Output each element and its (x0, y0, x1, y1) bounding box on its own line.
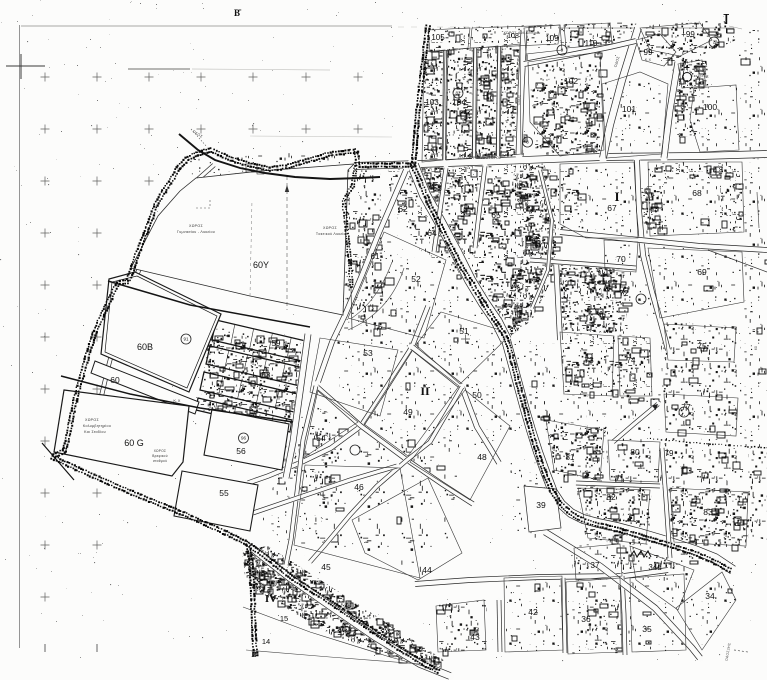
svg-text:Και Σταδίου: Και Σταδίου (84, 430, 106, 434)
svg-text:103: 103 (425, 98, 439, 107)
svg-text:104: 104 (452, 97, 466, 107)
svg-text:ΟΔOΣ ΤΡΑΠΕΖOΥΝΤOΣ: ΟΔOΣ ΤΡΑΠΕΖOΥΝΤOΣ (459, 156, 502, 160)
svg-text:65: 65 (491, 210, 501, 220)
svg-text:61: 61 (371, 252, 380, 261)
svg-text:67: 67 (607, 203, 617, 213)
svg-text:Βρεφικού: Βρεφικού (152, 454, 168, 458)
svg-text:79: 79 (665, 449, 674, 458)
svg-text:XΩΡOΣ: XΩΡOΣ (323, 226, 337, 230)
svg-text:57: 57 (253, 400, 261, 409)
svg-text:96: 96 (241, 436, 247, 441)
svg-text:50: 50 (472, 390, 482, 400)
svg-text:99: 99 (644, 48, 653, 57)
svg-text:75: 75 (697, 341, 707, 351)
svg-text:60: 60 (110, 375, 120, 385)
svg-text:II: II (420, 384, 430, 398)
svg-text:35: 35 (642, 624, 652, 634)
svg-text:48: 48 (477, 452, 487, 462)
svg-text:B: B (251, 650, 257, 659)
svg-text:46: 46 (354, 482, 364, 492)
svg-text:59: 59 (272, 339, 281, 348)
svg-text:52: 52 (411, 274, 421, 284)
svg-text:77: 77 (681, 402, 691, 412)
svg-text:37: 37 (591, 561, 600, 570)
svg-text:69: 69 (697, 267, 707, 277)
svg-text:68: 68 (692, 188, 702, 198)
svg-text:+99: +99 (681, 30, 695, 39)
svg-text:XΩΡOΣ: XΩΡOΣ (85, 418, 99, 422)
svg-text:ΧΩΡOΣ: ΧΩΡOΣ (154, 449, 167, 453)
svg-text:82: 82 (606, 492, 616, 502)
svg-text:43: 43 (470, 632, 480, 642)
svg-text:102: 102 (564, 76, 578, 86)
svg-text:39: 39 (536, 500, 546, 510)
svg-text:Κ.Χ: Κ.Χ (173, 398, 180, 403)
svg-text:Κολυμβητηρίου: Κολυμβητηρίου (83, 424, 111, 428)
svg-text:101: 101 (622, 104, 636, 114)
svg-text:58: 58 (262, 371, 271, 380)
svg-text:XΩΡOΣ: XΩΡOΣ (694, 69, 707, 73)
svg-text:54: 54 (316, 433, 326, 443)
svg-text:82: 82 (455, 91, 461, 96)
svg-text:63: 63 (432, 183, 442, 193)
svg-text:60 G: 60 G (124, 438, 144, 448)
svg-text:σταθμού: σταθμού (153, 459, 167, 463)
svg-text:73: 73 (584, 355, 594, 365)
svg-text:49: 49 (403, 407, 413, 417)
svg-text:80: 80 (630, 447, 640, 457)
svg-text:45: 45 (321, 562, 331, 572)
svg-text:14: 14 (262, 637, 270, 646)
svg-text:60B: 60B (137, 342, 153, 352)
svg-text:105: 105 (431, 33, 445, 42)
svg-text:74: 74 (627, 356, 636, 365)
svg-text:51: 51 (459, 326, 469, 336)
svg-text:62: 62 (398, 204, 408, 214)
svg-text:109: 109 (545, 34, 559, 43)
svg-text:91: 91 (183, 337, 189, 342)
svg-text:66: 66 (531, 236, 541, 246)
svg-text:Γυμνασίου - Λυκείου: Γυμνασίου - Λυκείου (177, 230, 215, 234)
svg-text:I: I (614, 189, 619, 204)
svg-text:64: 64 (427, 228, 437, 238)
svg-text:Tακτικού Λυκείου: Tακτικού Λυκείου (316, 232, 348, 236)
svg-text:15: 15 (280, 614, 288, 623)
svg-text:53: 53 (363, 348, 373, 358)
svg-text:81: 81 (566, 453, 575, 462)
svg-text:34: 34 (705, 591, 715, 601)
svg-text:IV: IV (265, 593, 277, 605)
svg-text:72: 72 (620, 289, 629, 298)
svg-text:60: 60 (754, 346, 758, 350)
svg-text:XΩΡOΣ: XΩΡOΣ (189, 224, 203, 228)
svg-text:36: 36 (581, 614, 591, 624)
svg-text:34d: 34d (648, 563, 661, 572)
svg-text:70: 70 (616, 254, 626, 264)
svg-text:110: 110 (585, 39, 598, 48)
svg-text:Κ.Χ: Κ.Χ (645, 58, 652, 62)
svg-text:83: 83 (703, 507, 713, 517)
svg-text:44: 44 (422, 565, 432, 575)
svg-text:60Y: 60Y (253, 260, 269, 270)
svg-text:Eκκλησίας: Eκκλησίας (691, 74, 709, 78)
svg-text:42: 42 (528, 607, 538, 617)
svg-text:56: 56 (236, 446, 246, 456)
svg-text:100: 100 (703, 102, 717, 112)
svg-text:55: 55 (219, 488, 229, 498)
svg-text:XΩΡOΣ Aθλ.Κέντρου: XΩΡOΣ Aθλ.Κέντρου (503, 31, 540, 35)
